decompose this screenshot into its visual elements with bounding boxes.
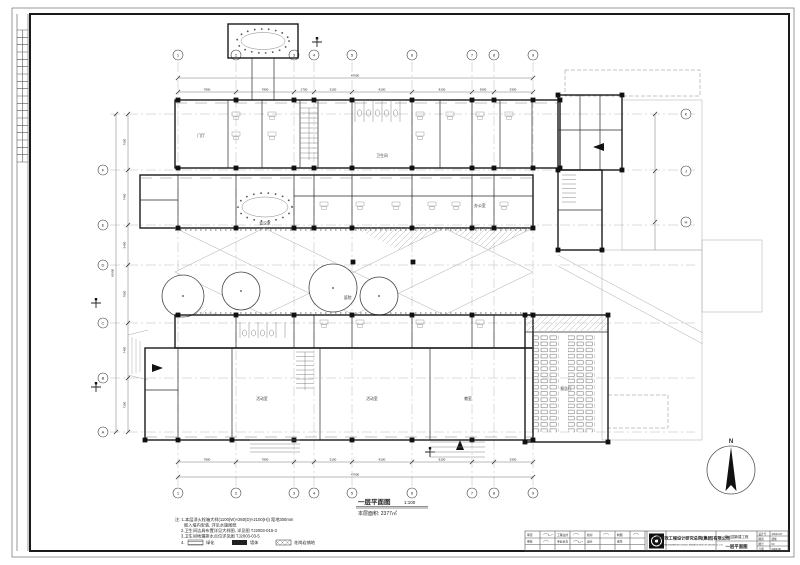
- sign-label: 审定: [527, 533, 533, 537]
- dim-text: 47900: [351, 473, 360, 477]
- section-marker: [91, 298, 101, 308]
- dim-text: 7800: [262, 88, 269, 92]
- dim-text: 7800: [204, 458, 211, 462]
- dim-text: 7600: [123, 138, 127, 145]
- grid-bubbles-left: [98, 165, 108, 437]
- room-label-classroom: 教室: [464, 396, 472, 401]
- grid-label: J: [685, 168, 687, 173]
- sign-label: 审核: [527, 540, 533, 544]
- room-label-activity2: 活动室: [366, 396, 378, 401]
- dim-text: 2700: [301, 88, 308, 92]
- grid-label: C: [102, 320, 105, 325]
- middle-wing: [140, 175, 533, 228]
- courtyard: 庭院: [162, 228, 533, 317]
- dim-text: 8100: [379, 458, 386, 462]
- note-line: 3.卫生间地漏排水点位详见图 TJ2003-03-5: [181, 533, 260, 540]
- plan-scale: 1:100: [404, 500, 416, 505]
- sign-label: 专业负责: [557, 540, 568, 544]
- plan-area: 本层面积: 2377㎡: [358, 510, 397, 517]
- dim-text: 7400: [123, 193, 127, 200]
- dim-text: 7400: [123, 346, 127, 353]
- legend-swatch-wall: [232, 540, 247, 545]
- dim-text: 5100: [330, 88, 337, 92]
- dim-text: 42900: [111, 268, 115, 277]
- grid-label: D: [102, 262, 105, 267]
- sign-label: 工程主持: [557, 533, 568, 537]
- room-label-lobby: 门厅: [197, 133, 205, 138]
- section-marker: [312, 37, 322, 47]
- plan-title: 一层平面图: [358, 497, 391, 506]
- dim-text: 5300: [510, 88, 517, 92]
- legend-label: 花岗岩铺地: [294, 539, 316, 546]
- north-label: N: [729, 439, 733, 445]
- canopy-overhang: [565, 70, 700, 96]
- south-corridor-band: [175, 315, 533, 348]
- field-value: 建施: [772, 537, 778, 541]
- legend-swatch-greenery: [188, 540, 203, 545]
- dim-text: 8100: [439, 458, 446, 462]
- legend: 绿化 墙体 花岗岩铺地: [188, 539, 316, 546]
- field-label: 设计号: [759, 532, 767, 536]
- plan-title-block: 一层平面图 1:100 本层面积: 2377㎡: [356, 497, 428, 517]
- dim-text: 5100: [330, 458, 337, 462]
- room-label-office: 办公室: [474, 203, 486, 208]
- floor-plan-svg: 1 2 3 4 5 6 7 8 9 1 2 3 4 5 6 7 8 9 F E …: [0, 0, 800, 565]
- drawing-sheet: 1 2 3 4 5 6 7 8 9 1 2 3 4 5 6 7 8 9 F E …: [0, 0, 800, 565]
- dim-text: 3000: [480, 88, 487, 92]
- grid-label: K: [685, 111, 688, 116]
- legend-label: 绿化: [206, 539, 215, 546]
- legend-label: 墙体: [250, 539, 259, 546]
- south-wing: [145, 348, 533, 440]
- dim-text: 47900: [351, 74, 360, 78]
- title-block: 审定 审核 工程主持 专业负责 校对 设计 制图 会签 上海市政工程设计研究总院…: [525, 531, 788, 551]
- grid-bubbles-bottom: [173, 488, 538, 498]
- grid-label: E: [102, 222, 105, 227]
- section-marker: [91, 382, 101, 392]
- courtyard-label: 庭院: [344, 295, 352, 300]
- grid-label: A: [102, 429, 105, 434]
- dim-text: 5300: [510, 458, 517, 462]
- field-label: 图号: [759, 542, 765, 546]
- grid-label: H: [685, 219, 688, 224]
- dim-text: 7800: [262, 458, 269, 462]
- north-needle: [726, 447, 737, 491]
- room-label-hall: 报告厅: [560, 386, 572, 391]
- north-arrow: N: [707, 439, 755, 494]
- field-label: 日期: [759, 547, 765, 551]
- dim-text: 7300: [123, 401, 127, 408]
- entrance-arrow-west: [152, 364, 163, 372]
- auditorium: [525, 315, 608, 442]
- dim-text: 8100: [379, 88, 386, 92]
- sheet-name: 一层平面图: [726, 543, 749, 550]
- project-name: 幼儿园新建工程: [725, 534, 749, 539]
- site-paving: [128, 70, 762, 440]
- dim-text: 7800: [204, 88, 211, 92]
- field-value: 03: [772, 542, 775, 546]
- company-name-en: SHANGHAI ENGINEERING DESIGN & RESEARCH I…: [659, 544, 724, 547]
- binding-strip: [17, 14, 28, 551]
- entrance-arrow-south: [456, 440, 464, 450]
- room-label-meeting: 会议室: [259, 221, 271, 226]
- room-label-wc: 卫生间: [376, 153, 388, 158]
- note-line: 4.: [181, 540, 185, 545]
- company-name: 上海市政工程设计研究总院(集团)有限公司: [652, 535, 730, 542]
- east-wing: [558, 95, 622, 250]
- grid-label: B: [102, 375, 105, 380]
- legend-swatch-granite: [276, 540, 291, 545]
- field-value: 2009.06: [772, 547, 782, 551]
- entrance-arrow-east: [593, 143, 604, 151]
- sign-label: 制图: [617, 533, 623, 537]
- field-label: 图别: [759, 537, 765, 541]
- room-label-activity1: 活动室: [256, 396, 268, 401]
- dim-text: 5400: [123, 241, 127, 248]
- north-wing: [175, 100, 560, 168]
- sheet-border: [12, 8, 794, 557]
- sign-label: 设计: [587, 540, 593, 544]
- entry-steps: [250, 440, 485, 457]
- grid-axes: 1 2 3 4 5 6 7 8 9 1 2 3 4 5 6 7 8 9 F E …: [98, 50, 695, 498]
- sign-label: 校对: [587, 533, 593, 537]
- dim-text: 8100: [439, 88, 446, 92]
- sign-label: 会签: [617, 540, 623, 544]
- field-value: 2009-317: [772, 532, 784, 536]
- dim-text: 7800: [123, 290, 127, 297]
- general-notes: 注: 1.本层消火栓箱大样(1100(W)×260(D)×2100(H)) 距地…: [175, 516, 316, 546]
